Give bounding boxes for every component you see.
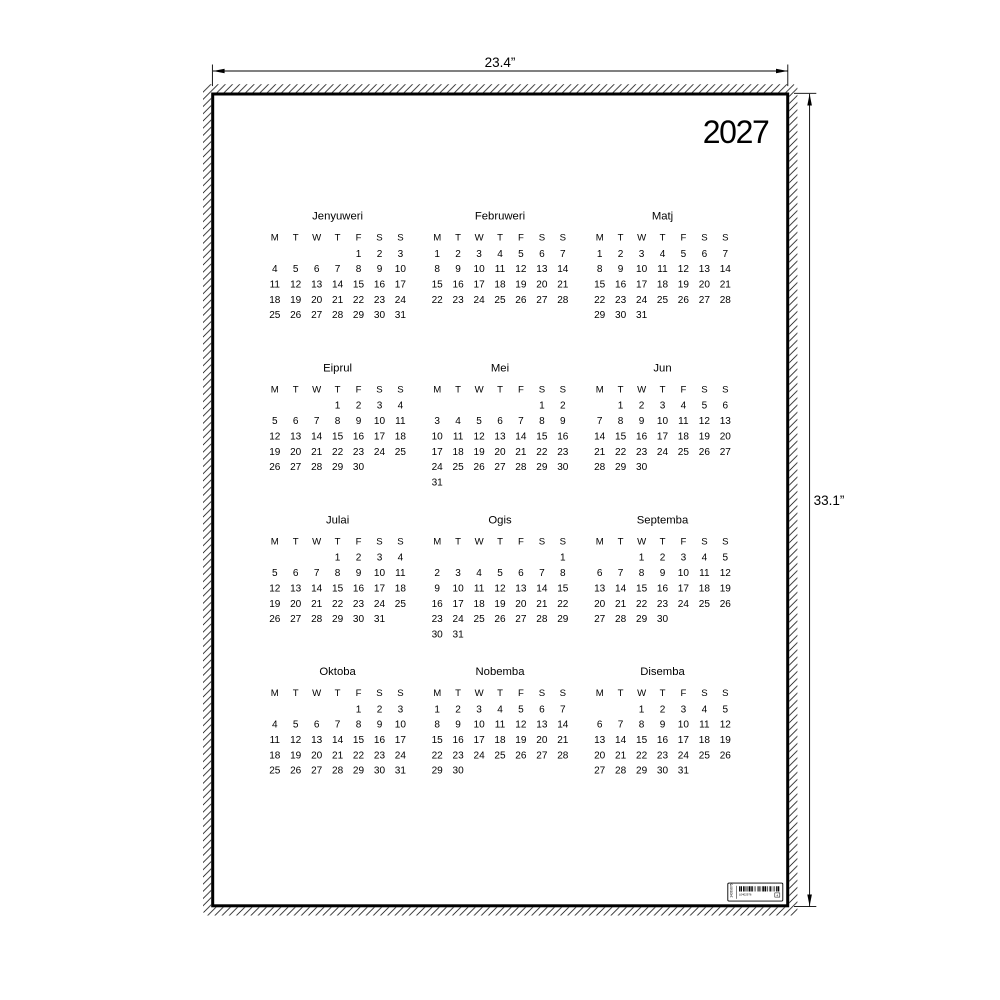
- svg-text:28: 28: [332, 310, 344, 321]
- svg-text:5: 5: [497, 568, 503, 579]
- svg-text:11: 11: [453, 431, 464, 442]
- svg-text:21: 21: [557, 280, 569, 291]
- svg-text:12: 12: [720, 720, 732, 731]
- svg-text:T: T: [618, 233, 624, 244]
- svg-text:20: 20: [311, 750, 323, 761]
- svg-text:14: 14: [311, 431, 323, 442]
- svg-text:15: 15: [594, 280, 606, 291]
- svg-text:30: 30: [374, 766, 386, 777]
- svg-text:16: 16: [615, 280, 627, 291]
- svg-text:6: 6: [293, 568, 299, 579]
- svg-text:8: 8: [356, 720, 362, 731]
- svg-text:22: 22: [615, 447, 627, 458]
- svg-text:26: 26: [290, 310, 302, 321]
- svg-text:13: 13: [536, 720, 548, 731]
- svg-text:21: 21: [311, 599, 323, 610]
- svg-text:3: 3: [398, 249, 404, 260]
- svg-text:Mei: Mei: [491, 363, 509, 375]
- svg-text:9: 9: [377, 720, 383, 731]
- svg-text:15: 15: [636, 735, 648, 746]
- svg-text:T: T: [660, 233, 666, 244]
- svg-text:18: 18: [699, 735, 711, 746]
- svg-text:13: 13: [311, 280, 323, 291]
- svg-text:11: 11: [270, 735, 281, 746]
- svg-text:S: S: [701, 385, 707, 396]
- svg-text:15: 15: [536, 431, 548, 442]
- svg-text:7: 7: [518, 416, 524, 427]
- svg-text:2: 2: [618, 249, 624, 260]
- svg-text:26: 26: [474, 462, 486, 473]
- svg-text:F: F: [356, 385, 362, 396]
- svg-text:24: 24: [636, 295, 648, 306]
- svg-text:1: 1: [597, 249, 603, 260]
- svg-text:30: 30: [374, 310, 386, 321]
- svg-text:20: 20: [536, 280, 548, 291]
- svg-text:11: 11: [270, 280, 281, 291]
- svg-text:M: M: [271, 233, 279, 244]
- svg-text:S: S: [722, 385, 728, 396]
- svg-text:6: 6: [597, 720, 603, 731]
- svg-text:1: 1: [356, 704, 362, 715]
- svg-text:S: S: [539, 688, 545, 699]
- svg-text:22: 22: [432, 295, 444, 306]
- svg-text:26: 26: [699, 447, 711, 458]
- svg-text:23: 23: [615, 295, 627, 306]
- svg-text:Disemba: Disemba: [640, 666, 685, 678]
- svg-text:26: 26: [720, 599, 732, 610]
- svg-text:4: 4: [497, 704, 503, 715]
- svg-text:25: 25: [269, 766, 281, 777]
- svg-text:19: 19: [269, 447, 281, 458]
- svg-text:2: 2: [434, 568, 440, 579]
- svg-text:1: 1: [560, 553, 566, 564]
- svg-text:15: 15: [557, 583, 569, 594]
- svg-text:M: M: [433, 537, 441, 548]
- svg-text:18: 18: [453, 447, 465, 458]
- svg-text:26: 26: [269, 462, 281, 473]
- svg-text:25: 25: [395, 447, 407, 458]
- svg-text:3: 3: [455, 568, 461, 579]
- svg-text:18: 18: [657, 280, 669, 291]
- svg-text:9: 9: [434, 583, 440, 594]
- svg-text:7: 7: [618, 720, 624, 731]
- svg-text:21: 21: [515, 447, 527, 458]
- svg-text:S: S: [539, 385, 545, 396]
- svg-text:M: M: [433, 385, 441, 396]
- svg-text:8: 8: [434, 720, 440, 731]
- svg-text:16: 16: [374, 735, 386, 746]
- svg-text:8: 8: [560, 568, 566, 579]
- svg-text:31: 31: [395, 310, 407, 321]
- svg-text:17: 17: [678, 735, 690, 746]
- svg-text:3: 3: [681, 704, 687, 715]
- svg-text:T: T: [455, 385, 461, 396]
- svg-text:21: 21: [332, 750, 344, 761]
- svg-text:F: F: [518, 537, 524, 548]
- svg-text:19: 19: [474, 447, 486, 458]
- svg-text:25: 25: [678, 447, 690, 458]
- svg-text:W: W: [475, 233, 485, 244]
- svg-text:23: 23: [374, 295, 386, 306]
- svg-text:19: 19: [720, 735, 732, 746]
- svg-text:22: 22: [536, 447, 548, 458]
- svg-text:20: 20: [515, 599, 527, 610]
- svg-text:Jun: Jun: [653, 363, 671, 375]
- svg-text:13: 13: [594, 583, 606, 594]
- svg-text:15: 15: [636, 583, 648, 594]
- svg-text:6: 6: [293, 416, 299, 427]
- svg-text:12: 12: [474, 431, 486, 442]
- svg-text:16: 16: [657, 735, 669, 746]
- svg-text:26: 26: [290, 766, 302, 777]
- svg-text:3: 3: [476, 249, 482, 260]
- svg-text:5: 5: [293, 264, 299, 275]
- svg-text:23: 23: [657, 599, 669, 610]
- svg-text:31: 31: [636, 310, 648, 321]
- svg-text:2: 2: [377, 704, 383, 715]
- svg-text:16: 16: [557, 431, 569, 442]
- svg-text:9: 9: [639, 416, 645, 427]
- svg-text:14: 14: [615, 583, 627, 594]
- svg-text:29: 29: [615, 462, 627, 473]
- svg-text:6: 6: [539, 704, 545, 715]
- svg-text:1: 1: [335, 401, 341, 412]
- svg-text:4: 4: [660, 249, 666, 260]
- svg-text:5: 5: [518, 249, 524, 260]
- svg-text:6: 6: [723, 401, 729, 412]
- svg-text:S: S: [701, 233, 707, 244]
- svg-text:2: 2: [356, 553, 362, 564]
- svg-text:22: 22: [332, 447, 344, 458]
- svg-text:11: 11: [395, 568, 406, 579]
- svg-text:S: S: [701, 688, 707, 699]
- svg-text:S: S: [560, 233, 566, 244]
- svg-text:1: 1: [335, 553, 341, 564]
- svg-text:17: 17: [395, 735, 407, 746]
- svg-text:3: 3: [377, 401, 383, 412]
- svg-text:11: 11: [699, 720, 710, 731]
- svg-text:T: T: [455, 537, 461, 548]
- svg-text:14: 14: [536, 583, 548, 594]
- svg-text:28: 28: [515, 462, 527, 473]
- svg-text:6: 6: [597, 568, 603, 579]
- svg-text:S: S: [560, 537, 566, 548]
- svg-text:8: 8: [335, 416, 341, 427]
- svg-text:T: T: [335, 385, 341, 396]
- svg-text:W: W: [475, 385, 485, 396]
- svg-text:16: 16: [657, 583, 669, 594]
- svg-text:W: W: [312, 537, 322, 548]
- svg-text:16: 16: [453, 280, 465, 291]
- svg-text:28: 28: [332, 766, 344, 777]
- svg-text:20: 20: [311, 295, 323, 306]
- svg-text:5: 5: [723, 704, 729, 715]
- svg-text:9: 9: [560, 416, 566, 427]
- svg-text:16: 16: [353, 583, 365, 594]
- svg-text:8: 8: [434, 264, 440, 275]
- svg-text:21: 21: [557, 735, 569, 746]
- svg-text:3: 3: [660, 401, 666, 412]
- svg-text:4: 4: [476, 568, 482, 579]
- svg-text:24: 24: [474, 295, 486, 306]
- svg-text:W: W: [637, 688, 647, 699]
- svg-text:23: 23: [353, 599, 365, 610]
- svg-text:28: 28: [311, 462, 323, 473]
- svg-text:30: 30: [557, 462, 569, 473]
- svg-text:27: 27: [311, 766, 323, 777]
- svg-text:15: 15: [615, 431, 627, 442]
- svg-text:S: S: [560, 688, 566, 699]
- svg-text:20: 20: [720, 431, 732, 442]
- svg-text:8: 8: [618, 416, 624, 427]
- svg-text:20: 20: [594, 750, 606, 761]
- svg-text:25: 25: [494, 750, 506, 761]
- svg-text:12: 12: [515, 720, 527, 731]
- svg-text:7: 7: [335, 720, 341, 731]
- svg-text:W: W: [637, 537, 647, 548]
- svg-text:24: 24: [474, 750, 486, 761]
- svg-text:S: S: [701, 537, 707, 548]
- svg-text:14: 14: [332, 735, 344, 746]
- svg-text:31: 31: [374, 614, 386, 625]
- svg-text:7: 7: [723, 249, 729, 260]
- svg-text:W: W: [475, 537, 485, 548]
- svg-text:30: 30: [657, 614, 669, 625]
- svg-text:30: 30: [615, 310, 627, 321]
- svg-text:M: M: [271, 688, 279, 699]
- svg-text:18: 18: [494, 280, 506, 291]
- svg-text:29: 29: [332, 462, 344, 473]
- svg-text:13: 13: [536, 264, 548, 275]
- svg-text:21: 21: [311, 447, 323, 458]
- svg-text:T: T: [497, 385, 503, 396]
- svg-text:19: 19: [269, 599, 281, 610]
- svg-text:18: 18: [494, 735, 506, 746]
- svg-text:12: 12: [678, 264, 690, 275]
- svg-text:26: 26: [515, 295, 527, 306]
- svg-text:29: 29: [594, 310, 606, 321]
- svg-text:2: 2: [455, 704, 461, 715]
- svg-text:Nobemba: Nobemba: [476, 666, 526, 678]
- svg-text:M: M: [271, 537, 279, 548]
- svg-text:14: 14: [557, 720, 569, 731]
- svg-text:2: 2: [377, 249, 383, 260]
- svg-text:22: 22: [594, 295, 606, 306]
- svg-text:20: 20: [494, 447, 506, 458]
- svg-text:18: 18: [395, 583, 407, 594]
- svg-text:18: 18: [678, 431, 690, 442]
- svg-text:26: 26: [678, 295, 690, 306]
- svg-text:21: 21: [615, 750, 627, 761]
- svg-text:28: 28: [615, 614, 627, 625]
- svg-text:28: 28: [594, 462, 606, 473]
- svg-text:9: 9: [660, 720, 666, 731]
- svg-text:F: F: [518, 233, 524, 244]
- svg-text:Oktoba: Oktoba: [319, 666, 356, 678]
- svg-text:28: 28: [311, 614, 323, 625]
- svg-text:20: 20: [290, 599, 302, 610]
- svg-text:2: 2: [560, 401, 566, 412]
- svg-text:19: 19: [494, 599, 506, 610]
- svg-text:28: 28: [536, 614, 548, 625]
- svg-text:23: 23: [453, 295, 465, 306]
- svg-text:11: 11: [395, 416, 406, 427]
- svg-text:F: F: [518, 385, 524, 396]
- svg-text:29: 29: [332, 614, 344, 625]
- svg-text:1: 1: [539, 401, 545, 412]
- svg-text:12: 12: [269, 431, 281, 442]
- svg-text:29: 29: [353, 310, 365, 321]
- svg-text:26: 26: [720, 750, 732, 761]
- svg-text:9: 9: [455, 264, 461, 275]
- svg-text:23: 23: [636, 447, 648, 458]
- svg-text:16: 16: [453, 735, 465, 746]
- svg-text:M: M: [433, 233, 441, 244]
- svg-text:17: 17: [636, 280, 648, 291]
- svg-text:16: 16: [636, 431, 648, 442]
- svg-text:T: T: [660, 688, 666, 699]
- svg-text:20: 20: [536, 735, 548, 746]
- svg-text:19: 19: [515, 280, 527, 291]
- svg-text:27: 27: [494, 462, 506, 473]
- svg-text:S: S: [397, 233, 403, 244]
- svg-text:F: F: [680, 537, 686, 548]
- svg-text:17: 17: [453, 599, 465, 610]
- svg-text:10: 10: [432, 431, 444, 442]
- svg-text:T: T: [497, 537, 503, 548]
- svg-text:33.1”: 33.1”: [814, 493, 845, 508]
- svg-text:18: 18: [699, 583, 711, 594]
- svg-text:14: 14: [332, 280, 344, 291]
- svg-text:21: 21: [332, 295, 344, 306]
- svg-text:27: 27: [536, 295, 548, 306]
- svg-text:24: 24: [657, 447, 669, 458]
- svg-text:27: 27: [311, 310, 323, 321]
- svg-text:14: 14: [594, 431, 606, 442]
- svg-text:24: 24: [374, 599, 386, 610]
- svg-text:T: T: [335, 688, 341, 699]
- svg-text:17: 17: [395, 280, 407, 291]
- svg-text:4: 4: [455, 416, 461, 427]
- svg-text:13: 13: [494, 431, 506, 442]
- svg-text:13: 13: [290, 583, 302, 594]
- svg-text:17: 17: [678, 583, 690, 594]
- svg-text:22: 22: [332, 599, 344, 610]
- svg-text:7: 7: [560, 249, 566, 260]
- svg-text:30: 30: [432, 630, 444, 641]
- svg-text:F: F: [356, 688, 362, 699]
- svg-text:7: 7: [314, 568, 320, 579]
- svg-text:25: 25: [269, 310, 281, 321]
- svg-text:10: 10: [374, 416, 386, 427]
- svg-text:15: 15: [432, 735, 444, 746]
- svg-text:13: 13: [594, 735, 606, 746]
- svg-text:F: F: [680, 688, 686, 699]
- svg-text:29: 29: [353, 766, 365, 777]
- svg-text:21: 21: [720, 280, 732, 291]
- svg-text:4: 4: [702, 553, 708, 564]
- svg-text:7: 7: [597, 416, 603, 427]
- svg-text:22: 22: [636, 599, 648, 610]
- svg-text:10: 10: [374, 568, 386, 579]
- svg-text:T: T: [335, 537, 341, 548]
- svg-text:9: 9: [356, 568, 362, 579]
- svg-text:Julai: Julai: [326, 515, 349, 527]
- svg-text:1: 1: [434, 249, 440, 260]
- svg-text:12: 12: [290, 735, 302, 746]
- svg-text:W: W: [475, 688, 485, 699]
- svg-text:Ogis: Ogis: [488, 515, 512, 527]
- svg-text:Februweri: Februweri: [475, 211, 525, 223]
- svg-text:13: 13: [311, 735, 323, 746]
- svg-text:16: 16: [374, 280, 386, 291]
- svg-text:4: 4: [272, 264, 278, 275]
- svg-text:7: 7: [314, 416, 320, 427]
- svg-text:M: M: [596, 537, 604, 548]
- svg-text:17: 17: [657, 431, 669, 442]
- svg-text:17: 17: [374, 583, 386, 594]
- svg-text:22: 22: [353, 295, 365, 306]
- svg-text:2: 2: [356, 401, 362, 412]
- svg-text:26: 26: [515, 750, 527, 761]
- svg-text:M: M: [596, 385, 604, 396]
- svg-text:23: 23: [374, 750, 386, 761]
- svg-text:9: 9: [377, 264, 383, 275]
- svg-text:M: M: [433, 688, 441, 699]
- svg-text:18: 18: [474, 599, 486, 610]
- svg-text:10: 10: [657, 416, 669, 427]
- svg-text:11: 11: [699, 568, 710, 579]
- svg-text:31: 31: [395, 766, 407, 777]
- svg-text:21: 21: [536, 599, 548, 610]
- svg-text:W: W: [637, 233, 647, 244]
- svg-text:20: 20: [290, 447, 302, 458]
- svg-text:1: 1: [618, 401, 624, 412]
- svg-text:8: 8: [639, 568, 645, 579]
- svg-text:4: 4: [272, 720, 278, 731]
- svg-text:29: 29: [557, 614, 569, 625]
- svg-text:10: 10: [395, 264, 407, 275]
- svg-text:13: 13: [699, 264, 711, 275]
- svg-text:4: 4: [398, 553, 404, 564]
- svg-text:10: 10: [474, 264, 486, 275]
- svg-text:20: 20: [594, 599, 606, 610]
- svg-text:31: 31: [678, 766, 690, 777]
- svg-text:4: 4: [497, 249, 503, 260]
- svg-text:W: W: [312, 385, 322, 396]
- svg-text:T: T: [293, 233, 299, 244]
- svg-text:15: 15: [353, 735, 365, 746]
- svg-text:5: 5: [723, 553, 729, 564]
- svg-text:10: 10: [474, 720, 486, 731]
- svg-text:4: 4: [702, 704, 708, 715]
- svg-text:14: 14: [515, 431, 527, 442]
- svg-text:11: 11: [657, 264, 668, 275]
- svg-text:T: T: [618, 385, 624, 396]
- svg-text:23: 23: [557, 447, 569, 458]
- svg-text:T: T: [293, 537, 299, 548]
- svg-text:31: 31: [432, 477, 444, 488]
- svg-text:3: 3: [476, 704, 482, 715]
- svg-text:S: S: [539, 233, 545, 244]
- svg-text:24: 24: [678, 599, 690, 610]
- svg-text:27: 27: [699, 295, 711, 306]
- svg-text:F: F: [356, 537, 362, 548]
- svg-text:T: T: [660, 537, 666, 548]
- svg-text:6: 6: [314, 720, 320, 731]
- svg-text:T: T: [618, 537, 624, 548]
- svg-text:12: 12: [515, 264, 527, 275]
